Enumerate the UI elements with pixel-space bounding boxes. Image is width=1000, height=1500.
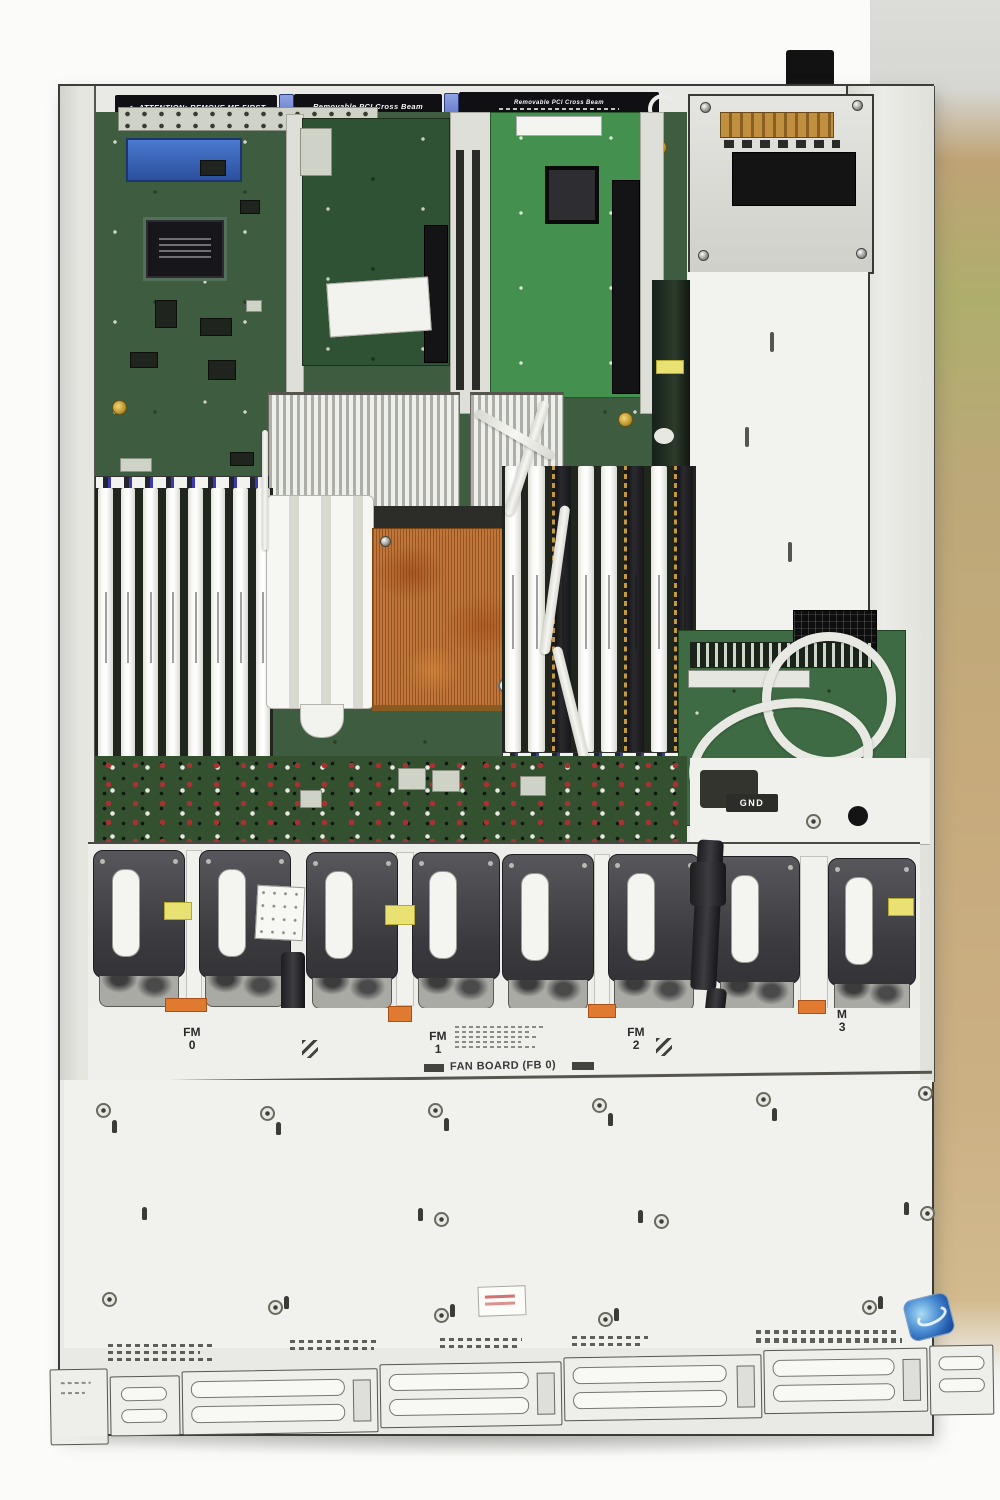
fan-label-window	[731, 875, 759, 963]
beam-right-label: Removable PCI Cross Beam	[514, 100, 604, 106]
keyhole-slot	[444, 1118, 449, 1131]
screw	[698, 250, 709, 261]
fan-module	[412, 852, 500, 980]
screw	[268, 1300, 283, 1315]
screw	[856, 248, 867, 259]
dimm-module	[624, 466, 643, 752]
dimm-slot	[601, 466, 617, 752]
orange-tag	[388, 1006, 412, 1022]
right-dimm-bank	[502, 466, 696, 752]
fan-module	[828, 858, 916, 986]
gnd-label: GND	[726, 794, 778, 812]
fan-screw	[206, 859, 211, 864]
keyhole-slot	[284, 1296, 289, 1309]
cable-label	[656, 360, 684, 374]
screw	[700, 102, 711, 113]
choke	[432, 770, 460, 792]
fm0-top: FM	[172, 1026, 212, 1039]
psu-black-label	[732, 152, 856, 206]
psu-vent-dashes	[724, 140, 840, 148]
fan-screw	[835, 867, 840, 872]
screw	[918, 1086, 933, 1101]
fan-label-window	[627, 873, 655, 961]
screw	[598, 1312, 613, 1327]
smd-chip	[130, 352, 158, 368]
riser-slot	[456, 150, 464, 390]
fan-label-window	[429, 871, 457, 959]
vrm-component-strip	[95, 756, 687, 846]
drive-tray	[763, 1348, 928, 1415]
riser-label	[516, 116, 602, 136]
white-id-tag	[477, 1285, 526, 1317]
smd-chip	[120, 458, 152, 472]
white-dotted-sticker	[255, 885, 306, 941]
screw	[852, 100, 863, 111]
smd-chip	[155, 300, 177, 328]
fan-screw	[173, 859, 178, 864]
dimm-slot	[578, 466, 594, 752]
drive-tray	[563, 1354, 762, 1421]
smd-chip	[240, 200, 260, 214]
fan-blades	[614, 980, 694, 1011]
screw	[380, 536, 391, 547]
fan-board-spec-print	[455, 1026, 547, 1062]
fan-screw	[615, 863, 620, 868]
fan-module	[714, 856, 800, 984]
fan-board-tab	[424, 1064, 444, 1072]
beam-right-fine-print	[499, 108, 619, 110]
fan-label-window	[112, 869, 140, 957]
smd-chip	[230, 452, 254, 466]
keyhole-slot	[772, 1108, 777, 1121]
drive-tray	[379, 1361, 562, 1428]
fan-screw	[313, 861, 318, 866]
yellow-tab	[164, 902, 192, 920]
server-photo: ◄ ATTENTION: REMOVE ME FIRST Removable P…	[0, 0, 1000, 1500]
fan-screw	[419, 861, 424, 866]
black-grommet	[848, 806, 868, 826]
fan-screw	[100, 859, 105, 864]
front-bezel	[49, 1345, 994, 1448]
screw	[756, 1092, 771, 1107]
fan-module-label-2: FM 2	[616, 1026, 656, 1052]
fan-module-label-0: FM 0	[172, 1026, 212, 1052]
dimm-slot	[211, 488, 226, 762]
chevron-marks	[656, 1038, 672, 1056]
fan-label-window	[218, 869, 246, 957]
keyhole-slot	[450, 1304, 455, 1317]
fine-print-group	[572, 1336, 652, 1350]
keyhole-slot	[614, 1308, 619, 1321]
riser-bracket	[300, 128, 332, 176]
fan-module	[502, 854, 594, 982]
fm0-bottom: 0	[172, 1038, 212, 1051]
screw	[806, 814, 821, 829]
dimm-slot	[166, 488, 181, 762]
cable-tie	[654, 428, 674, 444]
dimm-slot	[651, 466, 667, 752]
keyhole-slot	[904, 1202, 909, 1215]
fan-board-text: FAN BOARD (FB 0)	[450, 1059, 556, 1073]
smd-chip	[200, 160, 226, 176]
front-small-module	[110, 1375, 181, 1436]
fan-board-tab	[572, 1062, 594, 1070]
tray-slot	[745, 430, 749, 444]
right-blank-tray	[688, 272, 870, 633]
tray-slot	[788, 545, 792, 559]
brass-standoff	[618, 412, 633, 427]
dimm-slot	[143, 488, 158, 762]
fan-screw	[904, 867, 909, 872]
chassis-shadow	[40, 1436, 940, 1458]
fan-blades	[508, 980, 588, 1011]
riser-bga-chip	[545, 166, 599, 224]
smd-chip	[246, 300, 262, 312]
fan-blades	[205, 976, 285, 1007]
left-dimm-bank	[95, 488, 273, 762]
screw	[434, 1212, 449, 1227]
fan-screw	[509, 863, 514, 868]
fm3-top: M	[826, 1008, 858, 1021]
choke	[398, 768, 426, 790]
fan-screw	[788, 865, 793, 870]
fine-print-group	[290, 1340, 380, 1354]
keyhole-slot	[418, 1208, 423, 1221]
chevron-marks	[302, 1040, 318, 1058]
fan-screw	[279, 859, 284, 864]
orange-tag	[165, 998, 207, 1012]
plastic-air-baffle	[266, 495, 374, 709]
orange-tag	[588, 1004, 616, 1018]
screw	[260, 1106, 275, 1121]
choke	[300, 790, 322, 808]
keyhole-slot	[878, 1296, 883, 1309]
gnd-text: GND	[740, 798, 765, 808]
riser-slot	[472, 150, 480, 390]
controller-chip	[146, 220, 224, 278]
fine-print-group	[440, 1338, 526, 1352]
dimm-slot	[121, 488, 136, 762]
riser-white-label	[326, 277, 432, 338]
orange-tag	[798, 1000, 826, 1014]
dimm-slot	[188, 488, 203, 762]
tray-slot	[770, 335, 774, 349]
front-right-block	[929, 1345, 994, 1416]
fan-label-window	[845, 877, 873, 965]
fan-label-window	[521, 873, 549, 961]
keyhole-slot	[638, 1210, 643, 1223]
smd-chip	[208, 360, 236, 380]
yellow-tab	[888, 898, 914, 916]
screw	[654, 1214, 669, 1229]
fan-blades	[418, 978, 494, 1009]
fan-screw	[386, 861, 391, 866]
smd-chip	[200, 318, 232, 336]
keyhole-slot	[142, 1207, 147, 1220]
white-wire	[262, 430, 268, 550]
fine-print-group	[756, 1330, 906, 1347]
fan-blades	[312, 978, 392, 1009]
fan-module	[608, 854, 700, 982]
dimm-slot	[98, 488, 113, 762]
fan-carrier-post	[800, 856, 828, 1010]
fm2-bottom: 2	[616, 1038, 656, 1051]
riser-edge-connector	[612, 180, 640, 394]
screw	[102, 1292, 117, 1307]
keyhole-slot	[608, 1113, 613, 1126]
screw	[96, 1103, 111, 1118]
dimm-slot	[233, 488, 248, 762]
fm3-bottom: 3	[826, 1020, 858, 1033]
screw	[920, 1206, 935, 1221]
choke	[520, 776, 546, 796]
fm1-bottom: 1	[418, 1042, 458, 1055]
front-left-block	[50, 1369, 109, 1446]
screw	[434, 1308, 449, 1323]
fan-module-label-1: FM 1	[418, 1030, 458, 1056]
fm2-top: FM	[616, 1026, 656, 1039]
screw	[862, 1300, 877, 1315]
fan-module-label-3: M 3	[826, 1008, 858, 1034]
psu-gold-connector	[720, 112, 834, 138]
fan-screw	[582, 863, 587, 868]
fm1-top: FM	[418, 1030, 458, 1043]
fan-screw	[488, 861, 493, 866]
cable-connector	[690, 862, 726, 906]
yellow-tab	[385, 905, 415, 925]
fan-label-window	[325, 871, 353, 959]
brass-standoff	[112, 400, 127, 415]
drive-tray	[182, 1368, 379, 1435]
fan-board-label: FAN BOARD (FB 0)	[450, 1059, 556, 1073]
keyhole-slot	[112, 1120, 117, 1133]
screw	[592, 1098, 607, 1113]
dimm-slot	[528, 466, 544, 752]
screw	[428, 1103, 443, 1118]
keyhole-slot	[276, 1122, 281, 1135]
